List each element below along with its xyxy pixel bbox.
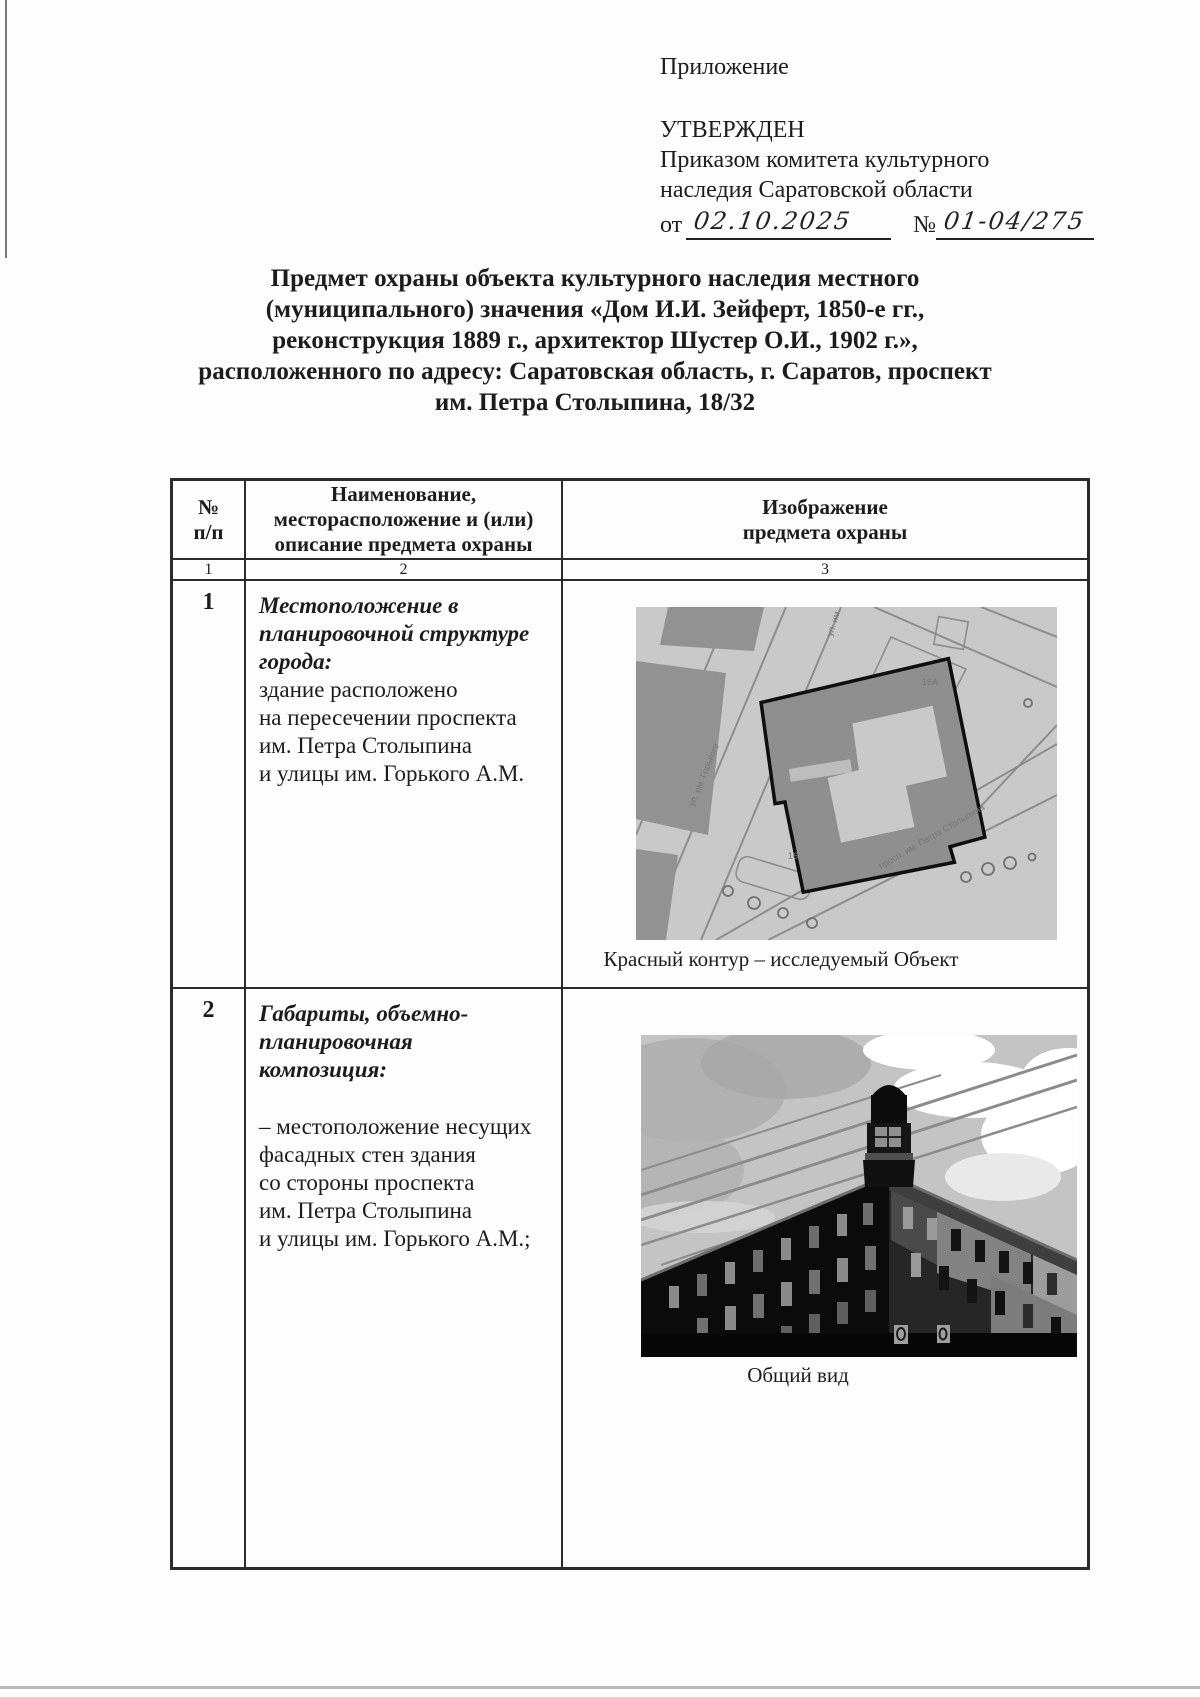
map-label-parcel-16: 16: [788, 851, 798, 861]
protection-subject-table: № п/п Наименование, месторасположение и …: [170, 478, 1090, 1570]
number-sign: №: [913, 210, 936, 240]
row1-description-cell: Местоположение в планировочной структуре…: [246, 581, 563, 987]
header-cell-image: Изображение предмета охраны: [563, 481, 1087, 558]
scan-artifact-bottom-line: [0, 1686, 1200, 1689]
order-date-number-line: от 02.10.2025 № 01-04/275: [660, 206, 1094, 240]
column-number-1: 1: [173, 560, 246, 579]
site-plan-map-svg: ул. им. ул. им. Горького просп. им. Петр…: [636, 607, 1057, 940]
header-cell-number: № п/п: [173, 481, 246, 558]
table-row-location: 1 Местоположение в планировочной структу…: [173, 579, 1087, 987]
site-plan-map-image: ул. им. ул. им. Горького просп. им. Петр…: [636, 607, 1057, 940]
row2-description-cell: Габариты, объемно- планировочная компози…: [246, 989, 563, 1567]
table-header-row: № п/п Наименование, месторасположение и …: [173, 481, 1087, 558]
row1-heading: Местоположение в планировочной структуре…: [259, 592, 555, 676]
title-line-2: (муниципального) значения «Дом И.И. Зейф…: [90, 294, 1100, 325]
approved-label: УТВЕРЖДЕН: [660, 115, 1094, 145]
map-label-parcel-16a: 16А: [922, 677, 938, 687]
document-title: Предмет охраны объекта культурного насле…: [90, 263, 1100, 418]
document-page: Приложение УТВЕРЖДЕН Приказом комитета к…: [0, 0, 1200, 1697]
row2-heading: Габариты, объемно- планировочная компози…: [259, 1000, 555, 1084]
approved-by-line2: наследия Саратовской области: [660, 175, 1094, 205]
date-prefix: от: [660, 210, 682, 240]
title-line-5: им. Петра Столыпина, 18/32: [90, 387, 1100, 418]
approved-by-line1: Приказом комитета культурного: [660, 145, 1094, 175]
order-number-field: 01-04/275: [936, 206, 1094, 240]
column-numbers-row: 1 2 3: [173, 558, 1087, 579]
title-line-4: расположенного по адресу: Саратовская об…: [90, 356, 1100, 387]
building-photo-svg: [641, 1035, 1077, 1357]
column-number-2: 2: [246, 560, 563, 579]
column-number-3: 3: [563, 560, 1087, 579]
row2-image-cell: Общий вид: [563, 989, 1087, 1567]
order-date-field: 02.10.2025: [686, 206, 891, 240]
title-line-1: Предмет охраны объекта культурного насле…: [90, 263, 1100, 294]
photo-caption: Общий вид: [563, 1363, 1033, 1388]
row2-number: 2: [173, 989, 246, 1567]
row1-body: здание расположено на пересечении проспе…: [259, 676, 555, 788]
appendix-label: Приложение: [660, 52, 1094, 82]
order-number-value: 01-04/275: [934, 206, 1087, 236]
row1-image-cell: ул. им. ул. им. Горького просп. им. Петр…: [563, 581, 1087, 987]
row1-number: 1: [173, 581, 246, 987]
order-date-value: 02.10.2025: [684, 206, 854, 236]
title-line-3: реконструкция 1889 г., архитектор Шустер…: [90, 325, 1100, 356]
row2-body: – местоположение несущих фасадных стен з…: [259, 1113, 555, 1253]
building-photo-image: [641, 1035, 1077, 1357]
scan-artifact-left-line: [5, 0, 7, 258]
approval-block: Приложение УТВЕРЖДЕН Приказом комитета к…: [660, 52, 1094, 240]
table-row-dimensions: 2 Габариты, объемно- планировочная компо…: [173, 987, 1087, 1567]
header-cell-description: Наименование, месторасположение и (или) …: [246, 481, 563, 558]
map-caption: Красный контур – исследуемый Объект: [563, 947, 999, 972]
